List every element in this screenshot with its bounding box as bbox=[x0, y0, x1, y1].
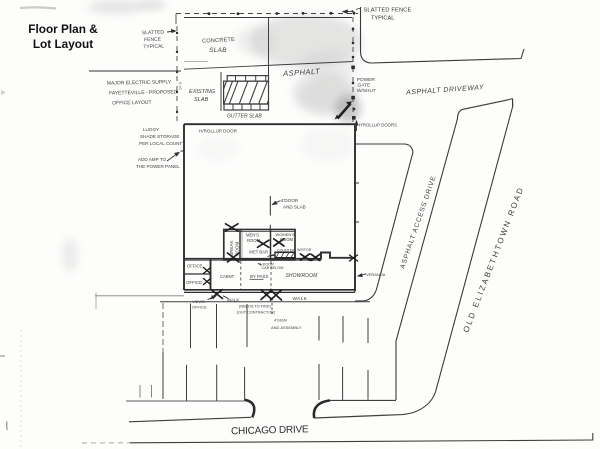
svg-text:TYPICAL: TYPICAL bbox=[371, 16, 394, 22]
svg-text:MEN'S: MEN'S bbox=[246, 233, 259, 238]
svg-text:SHADE STORAGE: SHADE STORAGE bbox=[140, 134, 179, 139]
svg-text:ADD AMP TO: ADD AMP TO bbox=[138, 157, 167, 162]
svg-text:VERANDA: VERANDA bbox=[366, 272, 386, 277]
svg-text:ROOM: ROOM bbox=[280, 237, 294, 242]
svg-text:GATE: GATE bbox=[358, 83, 371, 89]
svg-text:14'-0: 14'-0 bbox=[179, 82, 183, 90]
svg-text:ROOM: ROOM bbox=[247, 238, 261, 243]
svg-text:SLAB: SLAB bbox=[194, 97, 209, 103]
svg-text:WALK: WALK bbox=[227, 298, 239, 303]
svg-text:SLATTED: SLATTED bbox=[142, 29, 165, 36]
svg-text:AND SLAB: AND SLAB bbox=[283, 205, 306, 210]
svg-text:W/STOR: W/STOR bbox=[297, 248, 312, 252]
svg-text:4'SIGN: 4'SIGN bbox=[274, 318, 287, 323]
svg-text:CHICAGO DRIVE: CHICAGO DRIVE bbox=[231, 424, 309, 437]
svg-text:FENCE: FENCE bbox=[144, 37, 162, 44]
svg-text:[OUT CONTRACTOR]: [OUT CONTRACTOR] bbox=[237, 311, 275, 315]
svg-text:GUTTER SLAB: GUTTER SLAB bbox=[227, 114, 262, 120]
svg-text:BREAK: BREAK bbox=[229, 239, 234, 256]
svg-text:OFFICE: OFFICE bbox=[186, 280, 202, 285]
svg-text:CABNT: CABNT bbox=[220, 274, 235, 279]
svg-text:MAJOR ELECTRIC SUPPLY: MAJOR ELECTRIC SUPPLY bbox=[107, 79, 172, 86]
svg-text:H'ROLLUP DOORS: H'ROLLUP DOORS bbox=[359, 123, 397, 128]
svg-text:ROOM: ROOM bbox=[235, 242, 240, 256]
svg-text:ASPHALT: ASPHALT bbox=[282, 67, 322, 79]
svg-text:AND ASSEMBLY: AND ASSEMBLY bbox=[271, 325, 302, 330]
svg-text:CAB BELOW: CAB BELOW bbox=[262, 266, 284, 270]
svg-text:TYPICAL: TYPICAL bbox=[143, 44, 164, 51]
svg-text:WALK: WALK bbox=[293, 296, 308, 302]
svg-text:W/SHUT: W/SHUT bbox=[357, 88, 376, 94]
svg-text:BY PASS: BY PASS bbox=[250, 274, 268, 279]
svg-text:VIEWS: VIEWS bbox=[192, 299, 205, 304]
svg-text:OFFICE: OFFICE bbox=[187, 264, 203, 269]
svg-text:PER LOCAL COUNTY: PER LOCAL COUNTY bbox=[139, 141, 185, 146]
svg-text:ASPHALT DRIVEWAY: ASPHALT DRIVEWAY bbox=[405, 84, 485, 97]
svg-text:EXISTING: EXISTING bbox=[189, 89, 216, 95]
svg-text:SLATTED FENCE: SLATTED FENCE bbox=[364, 8, 412, 14]
svg-text:POWER: POWER bbox=[357, 77, 376, 83]
svg-text:CONCRETE: CONCRETE bbox=[202, 37, 235, 45]
svg-text:4'DOOR: 4'DOOR bbox=[281, 198, 299, 203]
svg-text:THE POWER PANEL: THE POWER PANEL bbox=[136, 164, 180, 169]
svg-text:OFFICE LAYOUT: OFFICE LAYOUT bbox=[112, 100, 151, 107]
svg-text:ASPHALT ACCESS DRIVE: ASPHALT ACCESS DRIVE bbox=[399, 175, 438, 270]
svg-text:WET BAR: WET BAR bbox=[249, 249, 268, 254]
svg-text:OFFICE: OFFICE bbox=[192, 305, 207, 310]
svg-text:SHOWROOM: SHOWROOM bbox=[286, 273, 319, 279]
svg-text:SLAB: SLAB bbox=[209, 47, 227, 54]
svg-text:FAYETTEVILLE - PROPOSED: FAYETTEVILLE - PROPOSED bbox=[109, 89, 178, 96]
svg-text:H/ROLLUP DOOR: H/ROLLUP DOOR bbox=[199, 129, 238, 134]
svg-text:LUGGY: LUGGY bbox=[143, 127, 159, 132]
svg-text:COUNTER: COUNTER bbox=[277, 249, 295, 253]
svg-text:(NEEDS TO FIND): (NEEDS TO FIND) bbox=[239, 305, 271, 309]
